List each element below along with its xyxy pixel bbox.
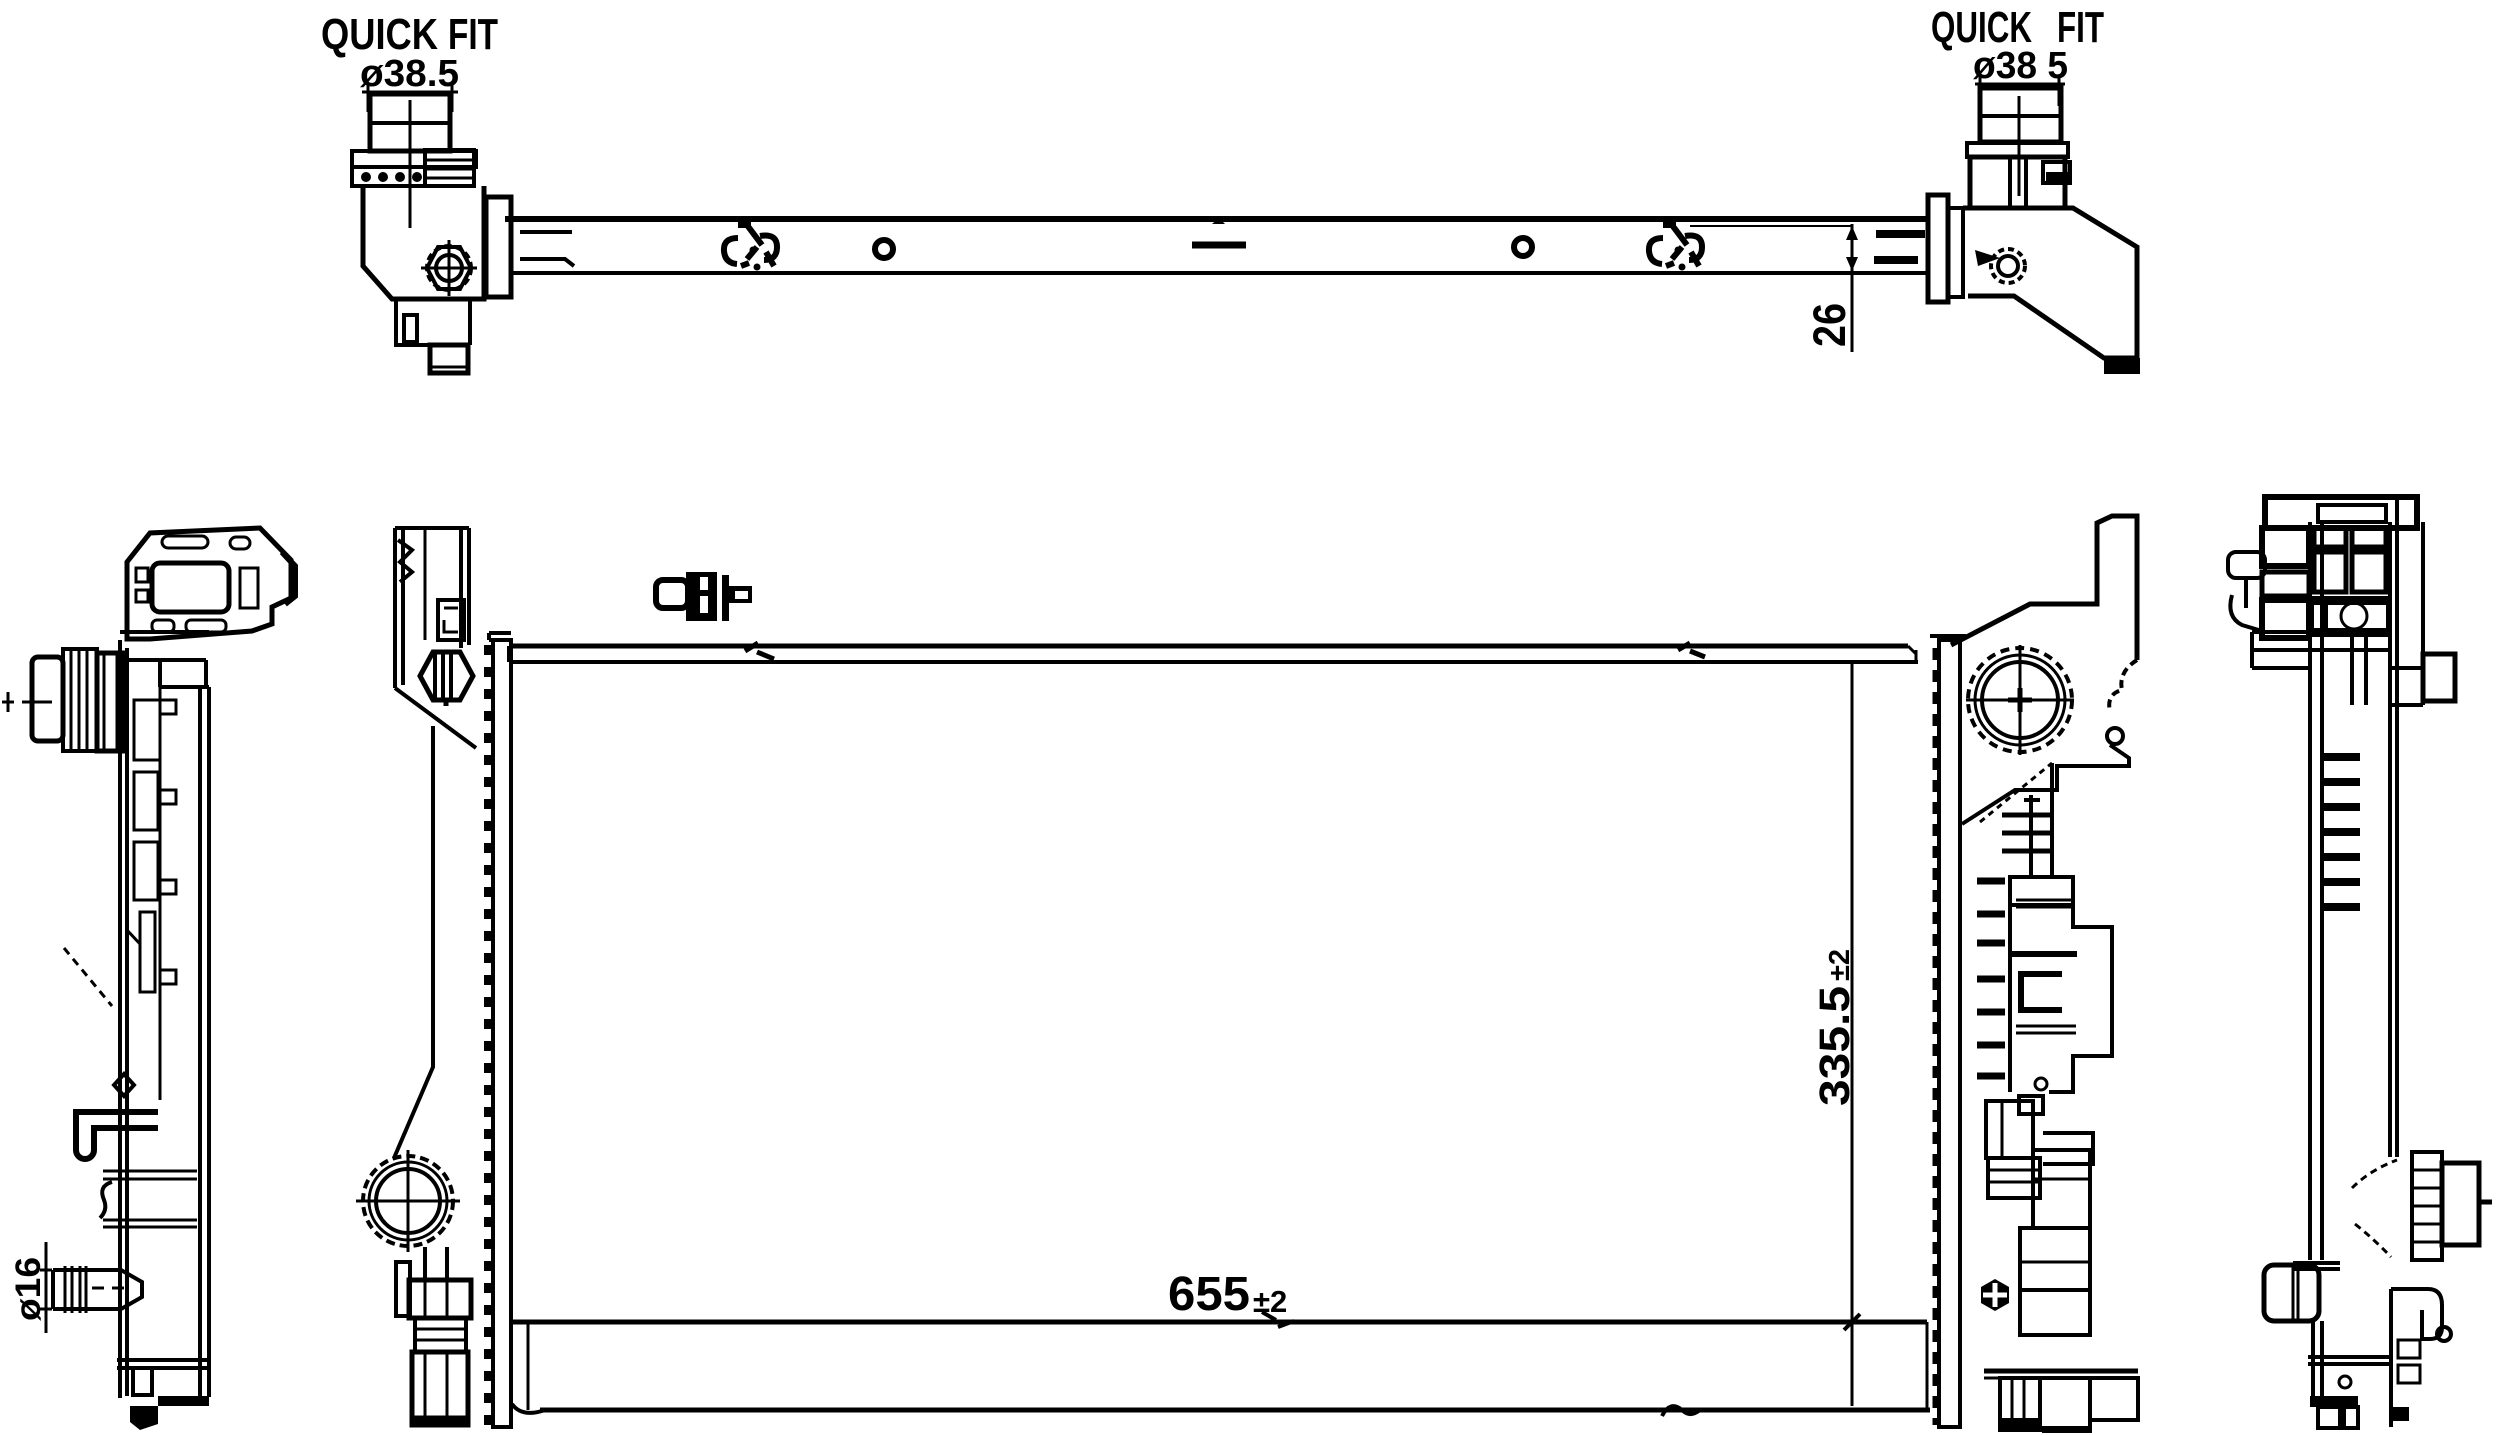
- svg-text:FIT: FIT: [448, 10, 498, 59]
- svg-text:ø38.5: ø38.5: [360, 53, 459, 95]
- svg-text:±2: ±2: [1824, 949, 1856, 981]
- svg-text:335.5: 335.5: [1811, 986, 1859, 1106]
- svg-text:ø16: ø16: [9, 1257, 48, 1321]
- svg-text:26: 26: [1804, 303, 1855, 347]
- svg-text:±2: ±2: [1253, 1284, 1287, 1319]
- svg-text:655: 655: [1168, 1268, 1250, 1321]
- svg-text:QUICK: QUICK: [321, 10, 438, 59]
- svg-text:ø38 5: ø38 5: [1973, 45, 2068, 87]
